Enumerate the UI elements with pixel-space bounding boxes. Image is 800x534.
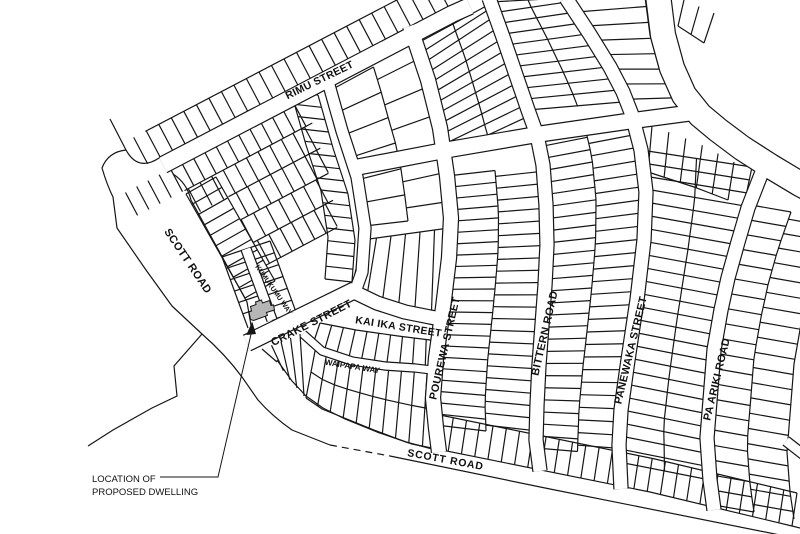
- svg-text:LOCATION OF: LOCATION OF: [92, 474, 156, 485]
- svg-text:PROPOSED DWELLING: PROPOSED DWELLING: [92, 487, 198, 498]
